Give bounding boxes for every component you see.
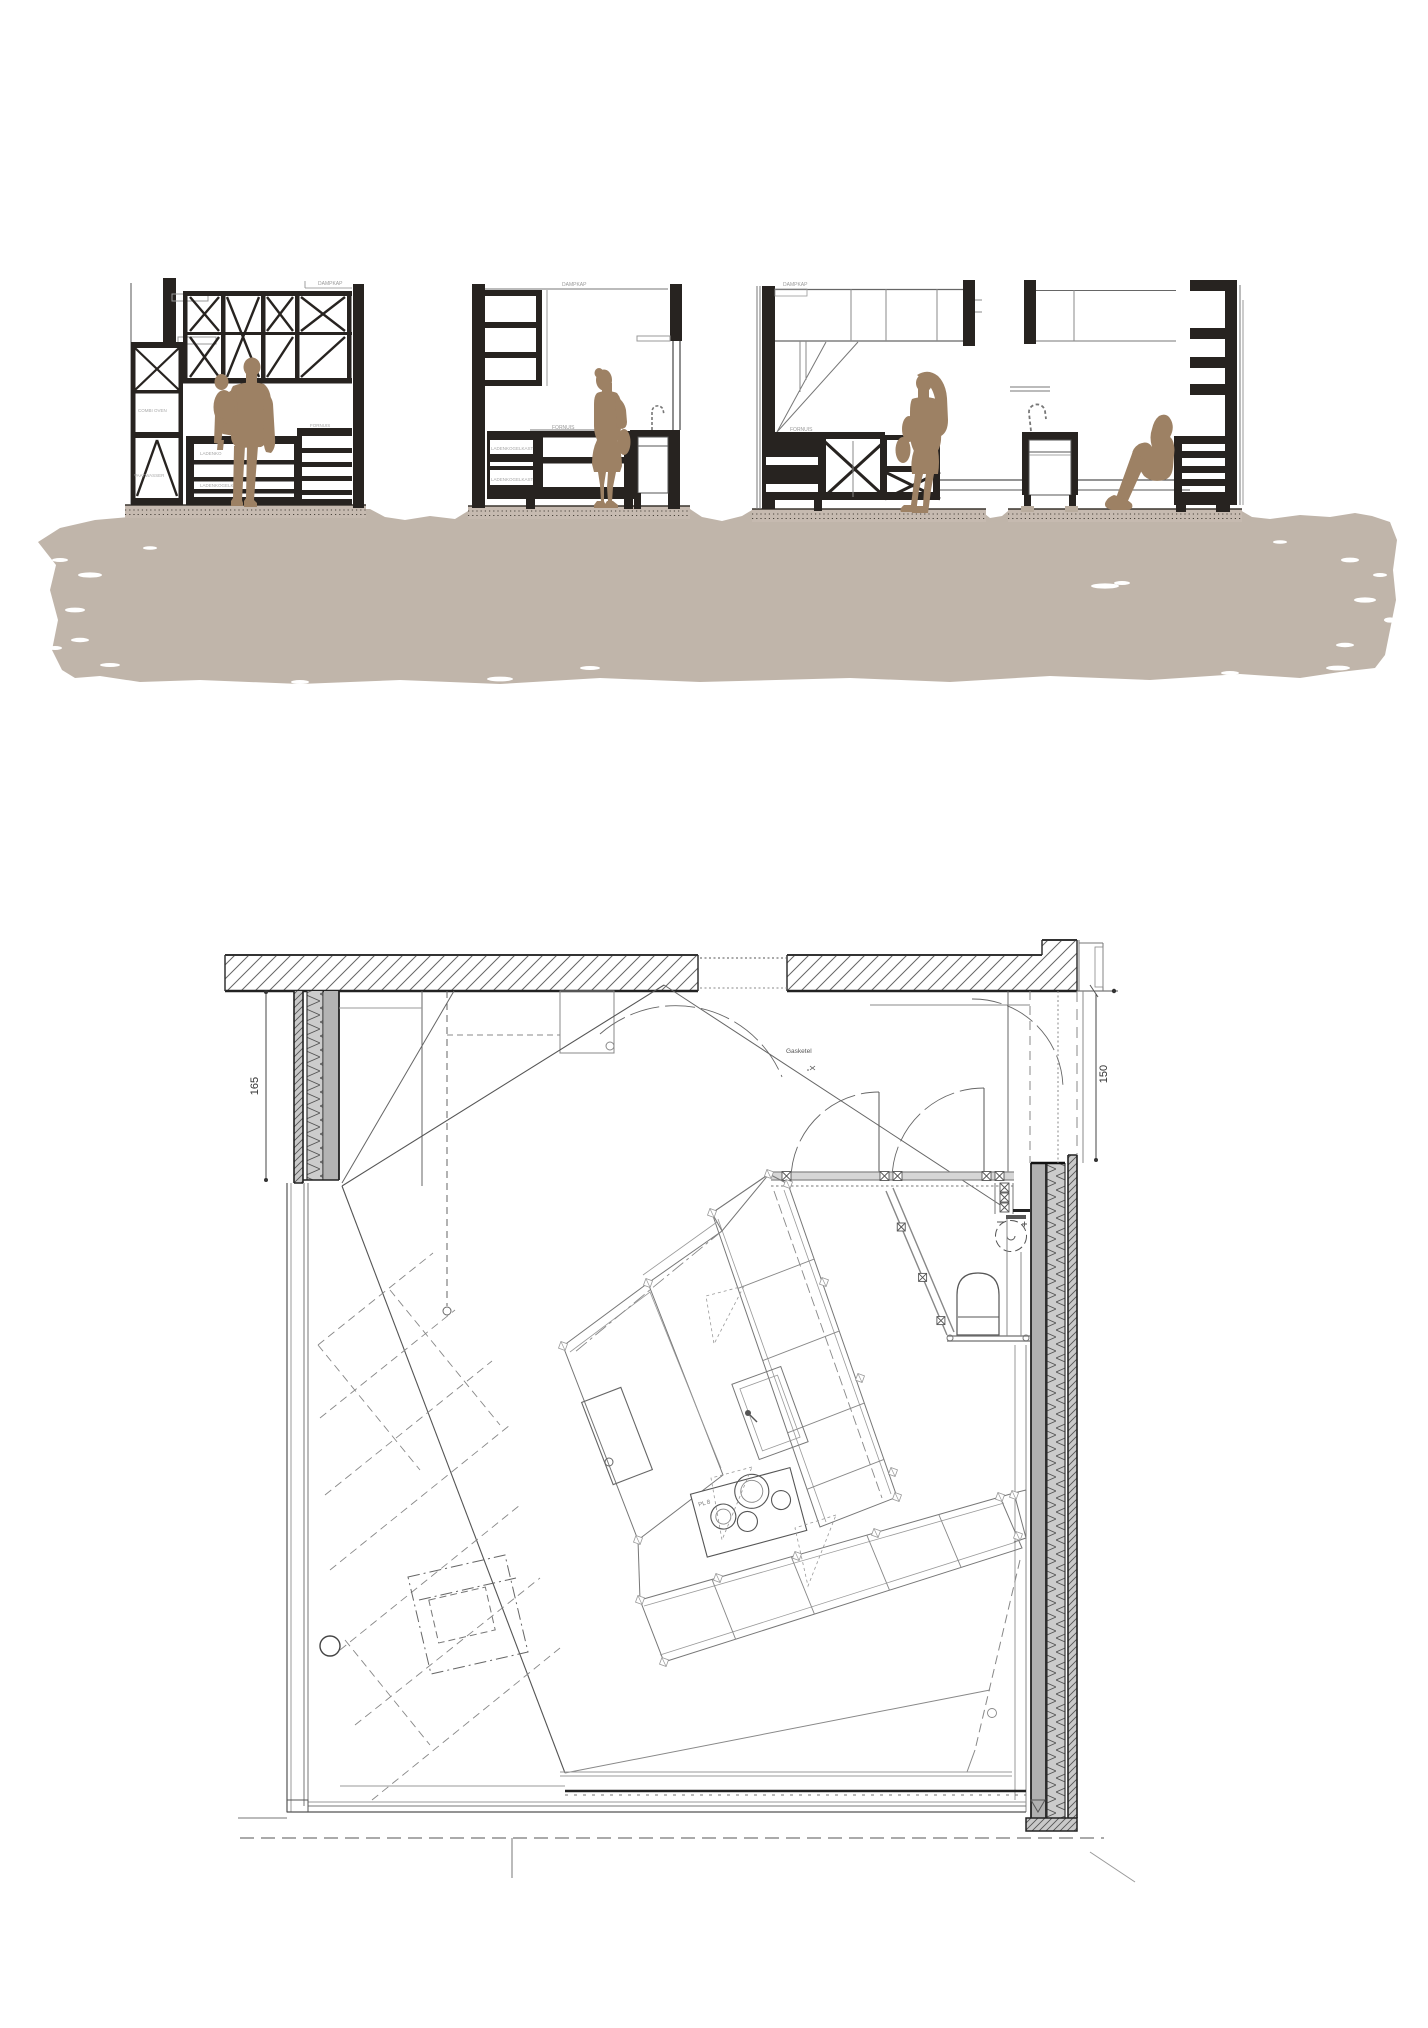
svg-text:LADENKOGELKAST: LADENKOGELKAST bbox=[491, 477, 534, 482]
svg-text:DAMPKAP: DAMPKAP bbox=[562, 282, 587, 288]
svg-text:Gasketel: Gasketel bbox=[786, 1048, 812, 1055]
svg-text:165: 165 bbox=[249, 1077, 261, 1095]
svg-text:DAMPKAP: DAMPKAP bbox=[318, 281, 343, 287]
svg-text:VAATWASSER: VAATWASSER bbox=[134, 473, 165, 478]
svg-text:LADENKO: LADENKO bbox=[200, 451, 222, 456]
svg-text:LADENKOGELKAST: LADENKOGELKAST bbox=[491, 446, 534, 451]
svg-text:150: 150 bbox=[1098, 1065, 1110, 1083]
svg-text:FORNUIS: FORNUIS bbox=[310, 423, 330, 428]
svg-text:DAMPKAP: DAMPKAP bbox=[783, 282, 808, 288]
svg-text:COMBI OVEN: COMBI OVEN bbox=[138, 408, 167, 413]
